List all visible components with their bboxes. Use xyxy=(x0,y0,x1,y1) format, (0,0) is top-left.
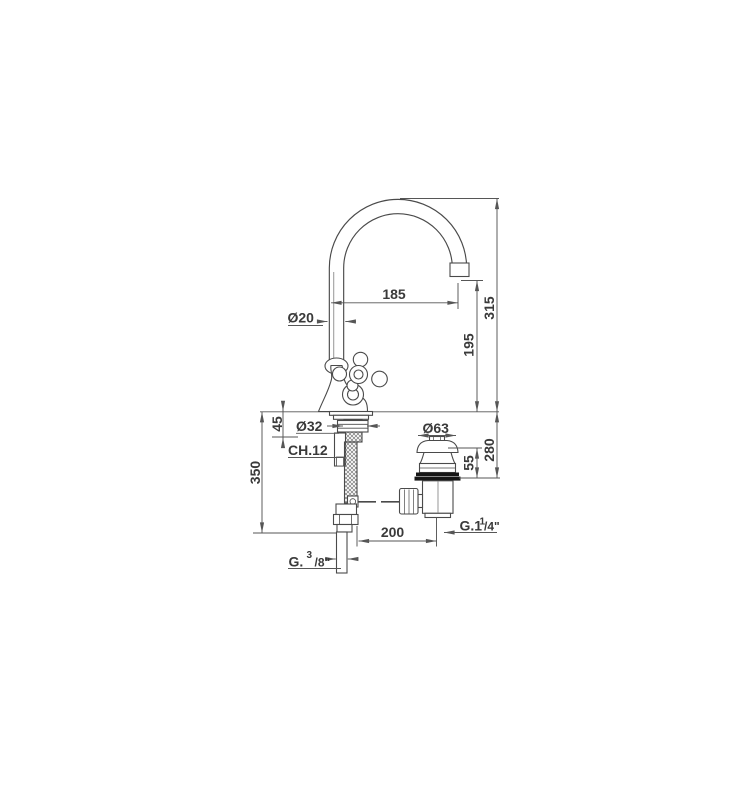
label-195: 195 xyxy=(461,333,477,357)
label-350: 350 xyxy=(247,461,263,485)
faucet-dimension-drawing: 185 315 Ø20 195 45 Ø32 CH.12 350 Ø63 280… xyxy=(0,0,739,800)
label-45: 45 xyxy=(269,416,285,432)
label-dia20: Ø20 xyxy=(288,310,315,326)
rod-guide-tip xyxy=(337,457,344,466)
waste-tailpiece xyxy=(425,513,451,517)
label-ch12: CH.12 xyxy=(288,442,328,458)
waste-neck xyxy=(420,453,455,464)
handle-knob-top xyxy=(353,352,367,366)
pop-up-waste xyxy=(400,437,461,518)
rod-connector xyxy=(418,495,423,508)
label-dia63: Ø63 xyxy=(423,420,450,436)
label-g38-suffix: /8" xyxy=(315,556,331,570)
spout-nozzle xyxy=(450,263,469,277)
flex-hose xyxy=(345,442,358,503)
label-185: 185 xyxy=(382,286,406,302)
label-g114-suffix: /4" xyxy=(484,520,500,534)
waste-cap xyxy=(417,441,458,453)
waste-gasket-lower xyxy=(415,477,461,481)
label-g38-sup: 3 xyxy=(307,550,313,561)
label-280: 280 xyxy=(481,438,497,462)
under-deck-assembly xyxy=(334,420,400,574)
label-g38-prefix: G. xyxy=(289,554,304,570)
handle-hub-detail xyxy=(354,370,363,379)
hose-fitting-top xyxy=(336,504,357,515)
label-315: 315 xyxy=(481,296,497,320)
base-plate-lower xyxy=(334,415,369,419)
handle-knob-right xyxy=(372,371,388,387)
label-55: 55 xyxy=(461,455,477,471)
label-dia32: Ø32 xyxy=(296,418,323,434)
hose-fitting-collar xyxy=(337,525,352,533)
handle-knob-left xyxy=(333,367,347,381)
base-plate-upper xyxy=(330,412,373,416)
technical-drawing-page: 185 315 Ø20 195 45 Ø32 CH.12 350 Ø63 280… xyxy=(0,0,739,800)
waste-gasket-upper xyxy=(416,473,459,477)
hose-fitting-nut xyxy=(334,515,359,525)
label-g114: G.1 1 /4" xyxy=(460,517,500,534)
label-g38: G. 3 /8" xyxy=(289,550,331,570)
label-200: 200 xyxy=(381,524,405,540)
supply-tube xyxy=(337,532,348,573)
dimension-labels: 185 315 Ø20 195 45 Ø32 CH.12 350 Ø63 280… xyxy=(247,286,500,570)
